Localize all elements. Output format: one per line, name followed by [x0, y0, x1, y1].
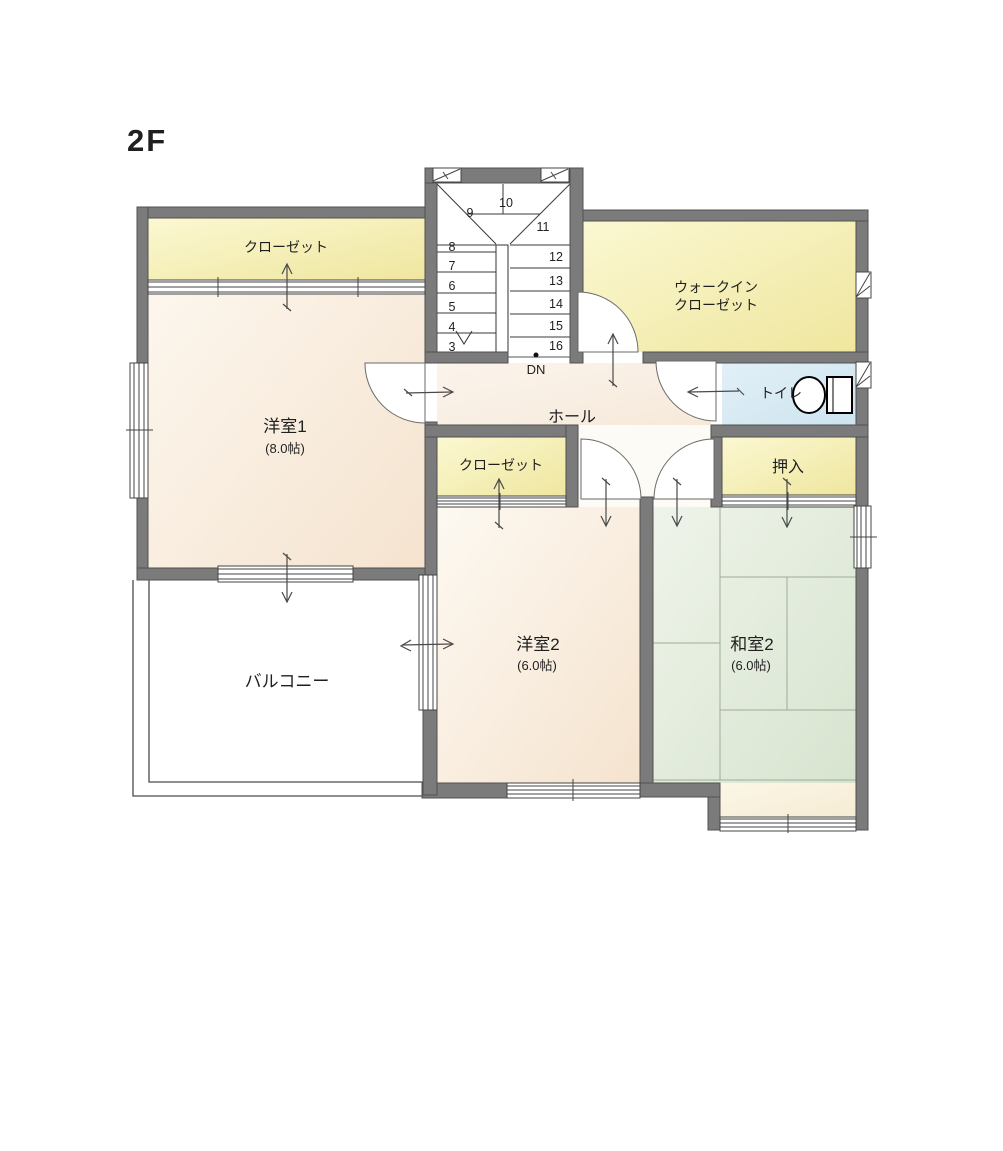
vent-stair-north-right — [541, 168, 569, 182]
floor-plan-2f: 2F クローゼット ウォークイン クローゼット 洋室1 (8.0帖) ホール D… — [0, 0, 1003, 1146]
wall — [425, 422, 437, 580]
wall — [425, 352, 508, 363]
closet2-sliding-door — [437, 493, 566, 510]
floor-plan-canvas: 2F クローゼット ウォークイン クローゼット 洋室1 (8.0帖) ホール D… — [0, 0, 1003, 1146]
stair-step-number: 14 — [549, 297, 563, 311]
window-balcony-yoshitsu2 — [419, 575, 437, 710]
room-label-hall: ホール — [548, 409, 596, 426]
wall — [856, 221, 868, 273]
vent-stair-north-left — [433, 168, 461, 182]
room-washitsu2-lower-strip — [720, 783, 856, 818]
room-size-yoshitsu1: (8.0帖) — [265, 441, 305, 456]
room-size-washitsu2: (6.0帖) — [731, 658, 771, 673]
stair-step-number: 3 — [449, 340, 456, 354]
oshiire-sliding-door — [722, 492, 856, 510]
wall — [708, 797, 720, 830]
room-label-oshiire: 押入 — [772, 458, 804, 476]
wall — [583, 210, 868, 221]
stair-dn-dot — [534, 353, 539, 358]
stair-step-number: 12 — [549, 250, 563, 264]
wall — [137, 568, 220, 580]
stair-step-number: 8 — [449, 240, 456, 254]
wall — [137, 207, 148, 363]
wall — [640, 497, 653, 797]
room-label-yoshitsu2: 洋室2 — [516, 635, 559, 654]
wall — [423, 710, 437, 795]
stair-center-divider — [496, 245, 508, 352]
window-wic-east — [856, 272, 871, 298]
stair-step-number: 16 — [549, 339, 563, 353]
wall — [425, 168, 437, 352]
stair-step-number: 7 — [449, 259, 456, 273]
wall — [425, 425, 578, 437]
room-label-closet1: クローゼット — [244, 239, 328, 255]
stair-step-number: 5 — [449, 300, 456, 314]
stair-step-number: 11 — [537, 220, 550, 234]
wall — [640, 783, 720, 797]
stair-step-number: 6 — [449, 279, 456, 293]
window-washitsu2-south — [720, 814, 856, 833]
stair-step-number: 9 — [467, 206, 474, 220]
room-label-wic-line2: クローゼット — [674, 297, 758, 313]
room-label-toilet: トイレ — [760, 385, 802, 401]
stair-step-number: 15 — [549, 319, 563, 333]
room-label-wic-line1: ウォークイン — [674, 279, 758, 295]
wall — [711, 425, 868, 437]
stair-step-number: 4 — [449, 320, 456, 334]
stair-down-label: DN — [527, 362, 546, 377]
wall — [137, 207, 437, 218]
toilet-tank — [827, 377, 852, 413]
wall — [856, 568, 868, 830]
window-toilet-east — [856, 362, 871, 388]
stair-step-number: 10 — [499, 196, 513, 210]
wall — [856, 388, 868, 506]
wall — [566, 425, 578, 507]
room-label-closet2: クローゼット — [459, 457, 543, 473]
room-size-yoshitsu2: (6.0帖) — [517, 658, 557, 673]
room-label-yoshitsu1: 洋室1 — [263, 417, 306, 436]
window-washitsu2-east — [850, 506, 877, 568]
room-label-washitsu2: 和室2 — [730, 635, 773, 654]
stair-step-number: 13 — [549, 274, 563, 288]
floor-label: 2F — [127, 123, 167, 158]
room-label-balcony: バルコニー — [245, 672, 330, 691]
